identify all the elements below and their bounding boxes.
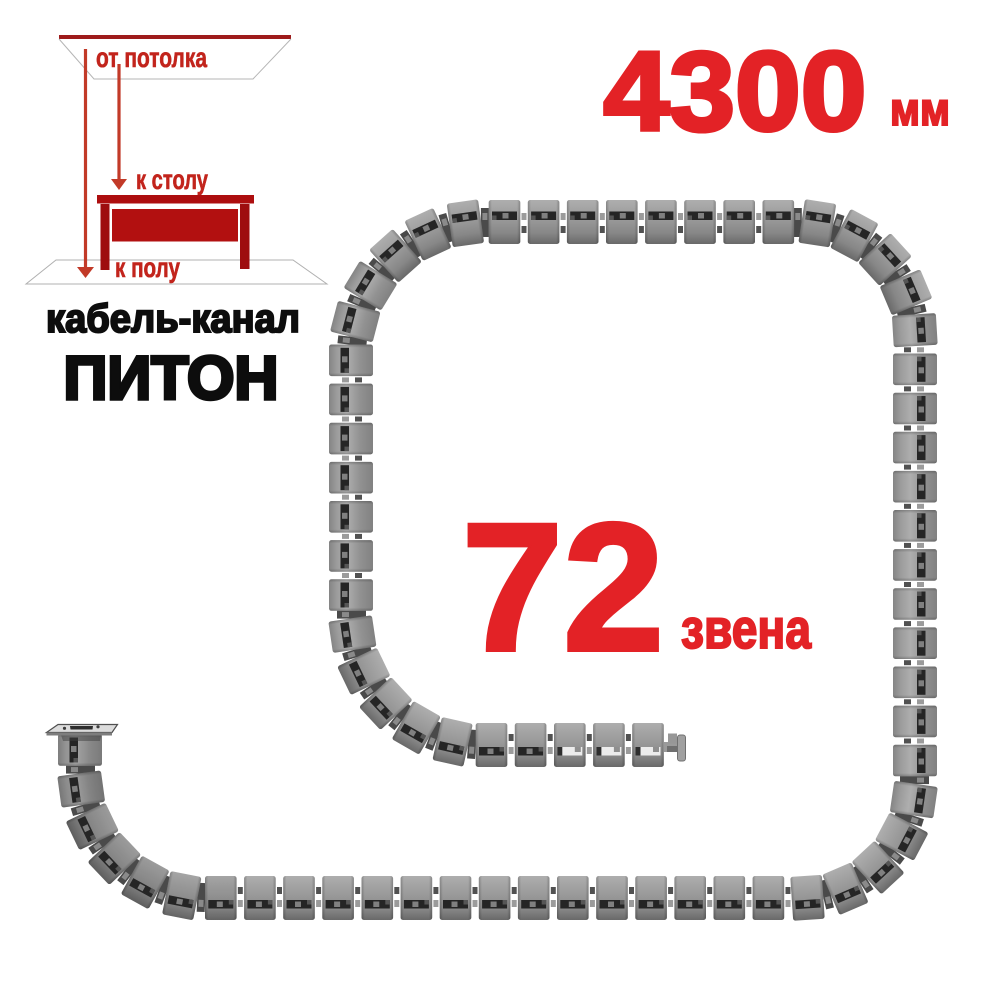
svg-text:от потолка: от потолка — [96, 42, 207, 73]
svg-text:мм: мм — [890, 83, 950, 135]
svg-text:ПИТОН: ПИТОН — [64, 344, 279, 412]
svg-text:к полу: к полу — [115, 252, 180, 283]
svg-text:кабель-канал: кабель-канал — [46, 297, 300, 341]
svg-text:72: 72 — [462, 485, 664, 689]
svg-text:к столу: к столу — [136, 164, 208, 195]
svg-text:4300: 4300 — [604, 29, 867, 154]
svg-text:звена: звена — [681, 597, 812, 660]
